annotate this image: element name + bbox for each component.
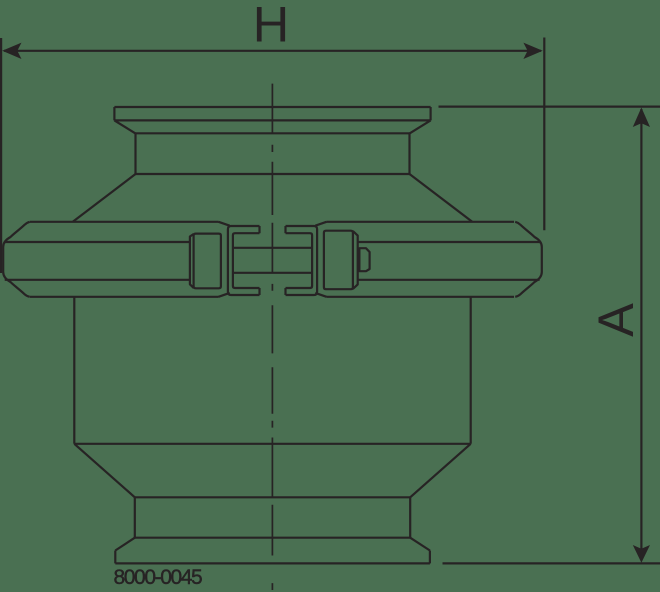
svg-text:8000-0045: 8000-0045 [114, 566, 203, 589]
svg-text:H: H [253, 0, 289, 53]
svg-text:A: A [587, 303, 644, 337]
